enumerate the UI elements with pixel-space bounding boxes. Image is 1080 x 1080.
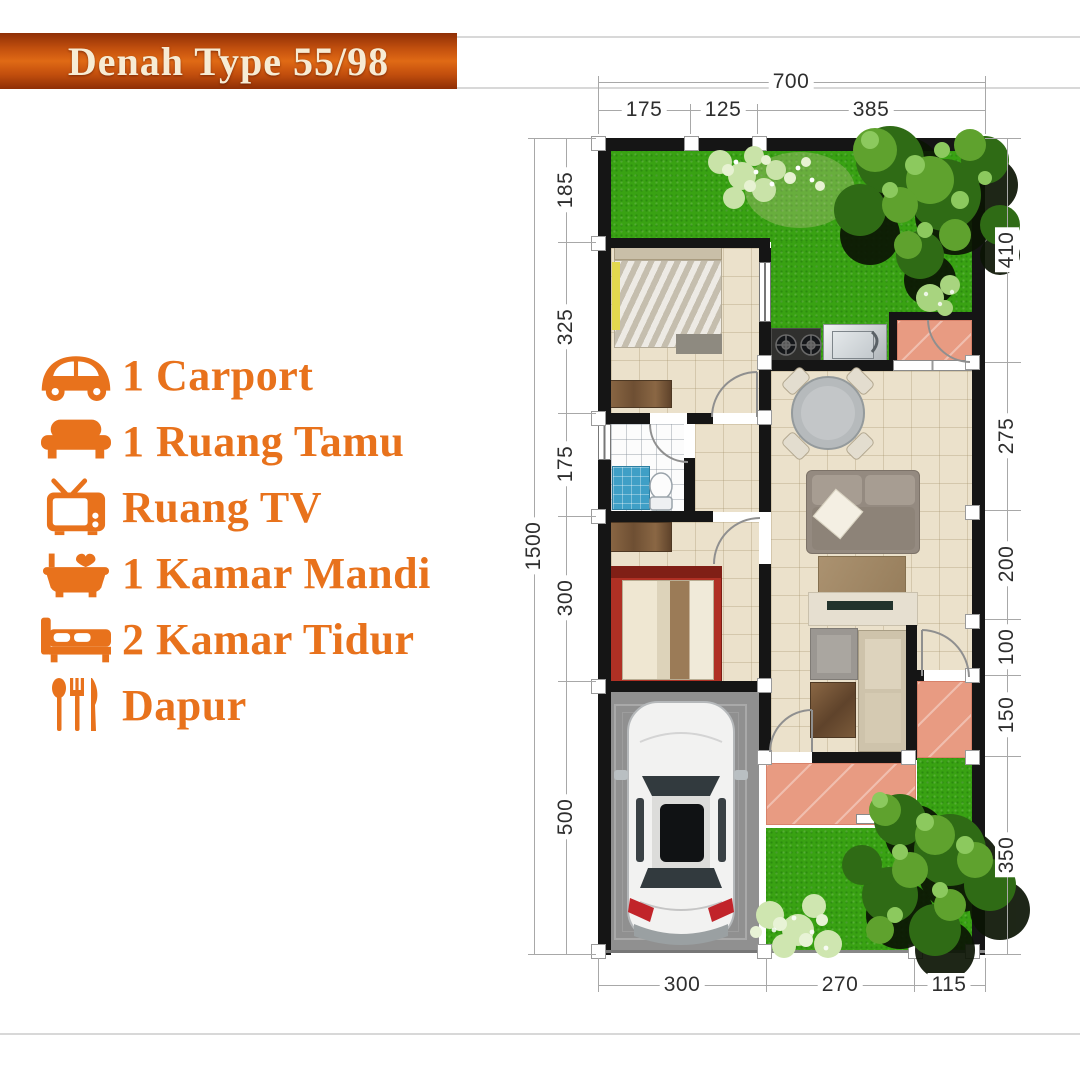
column-marker — [757, 678, 772, 693]
list-item-label: Dapur — [122, 680, 247, 731]
column-marker — [965, 614, 980, 629]
wall — [759, 371, 771, 512]
list-item-label: 1 Kamar Mandi — [122, 548, 431, 599]
column-marker — [757, 750, 772, 765]
column-marker — [965, 505, 980, 520]
dim-label: 1500 — [522, 518, 546, 575]
column-marker — [757, 355, 772, 370]
dim-label: 500 — [554, 795, 578, 840]
bottom-rule-line — [0, 1033, 1080, 1035]
dim-tick — [985, 675, 1021, 676]
dim-label: 300 — [660, 973, 705, 997]
bed-icon — [30, 615, 122, 663]
dim-tick — [985, 76, 986, 134]
dim-label: 185 — [554, 168, 578, 213]
wall — [598, 238, 770, 248]
dim-tick — [558, 681, 596, 682]
dim-tick — [757, 104, 758, 134]
title-banner: Denah Type 55/98 — [0, 33, 457, 89]
terrace-step — [856, 814, 914, 824]
bed-1-bench — [676, 334, 722, 354]
column-marker — [965, 750, 980, 765]
column-marker — [591, 236, 606, 251]
carport-paving-inner — [622, 712, 739, 932]
list-item-kamar-mandi: 1 Kamar Mandi — [30, 540, 530, 606]
television — [827, 601, 893, 610]
wall — [598, 138, 986, 151]
wall — [598, 950, 766, 953]
tv-icon — [30, 478, 122, 536]
list-item-ruang-tv: Ruang TV — [30, 474, 530, 540]
page-title: Denah Type 55/98 — [68, 38, 389, 85]
l-sofa-cushion — [865, 639, 901, 689]
dim-tick — [985, 138, 1021, 139]
column-marker — [752, 136, 767, 151]
list-item-dapur: Dapur — [30, 672, 530, 738]
tv-console — [808, 592, 918, 626]
dim-label: 385 — [849, 98, 894, 122]
wall — [906, 670, 924, 681]
column-marker — [965, 668, 980, 683]
hall-floor — [695, 424, 759, 512]
coffee-table — [818, 556, 906, 594]
dim-label: 700 — [769, 70, 814, 94]
dim-tick — [914, 958, 915, 992]
dim-tick — [558, 516, 596, 517]
dim-tick — [528, 138, 596, 139]
terrace-kitchen — [897, 320, 972, 362]
dim-label: 300 — [554, 576, 578, 621]
feature-list: 1 Carport 1 Ruang Tamu — [30, 342, 530, 738]
dim-tick — [766, 958, 767, 992]
wall — [889, 312, 897, 362]
list-item-label: Ruang TV — [122, 482, 322, 533]
list-item-label: 1 Ruang Tamu — [122, 416, 404, 467]
stove — [771, 328, 821, 362]
wall — [906, 625, 917, 760]
column-marker — [757, 410, 772, 425]
sliding-door-terrace — [893, 360, 972, 371]
dim-tick — [985, 756, 1021, 757]
dim-tick — [558, 413, 596, 414]
dim-tick — [985, 510, 1021, 511]
dim-label: 115 — [928, 973, 971, 997]
terrace-side — [917, 681, 972, 758]
wood-cabinet — [810, 682, 856, 738]
column-marker — [965, 944, 980, 959]
wall — [766, 950, 985, 953]
dim-label: 200 — [995, 542, 1019, 587]
wall — [759, 564, 771, 760]
wall — [889, 312, 972, 320]
dim-tick — [985, 619, 1021, 620]
shower-mat — [612, 466, 650, 510]
wall — [687, 413, 713, 424]
poster-canvas: Denah Type 55/98 1 Carport — [0, 0, 1080, 1080]
utensils-icon — [30, 677, 122, 733]
dresser-2 — [608, 522, 672, 552]
armchair — [810, 628, 858, 680]
dim-tick — [558, 242, 596, 243]
dim-label: 270 — [818, 973, 863, 997]
wall — [598, 511, 713, 522]
window-bedroom-1 — [759, 262, 771, 322]
column-marker — [908, 944, 923, 959]
car-icon — [30, 348, 122, 402]
dim-tick — [528, 954, 596, 955]
dim-label: 325 — [554, 305, 578, 350]
armchair-seat — [817, 635, 851, 673]
dim-tick — [598, 958, 599, 992]
bed-2-headboard — [608, 566, 722, 578]
dim-tick — [985, 954, 1021, 955]
wall — [972, 138, 985, 955]
dim-label: 350 — [995, 833, 1019, 878]
list-item-label: 1 Carport — [122, 350, 313, 401]
list-item-label: 2 Kamar Tidur — [122, 614, 415, 665]
dresser-1 — [608, 380, 672, 408]
dim-tick — [985, 958, 986, 992]
sofa-icon — [30, 419, 122, 463]
garden-bottom — [766, 828, 972, 950]
kitchen-sink — [823, 324, 887, 362]
dim-tick — [598, 76, 599, 134]
sofa-cushion — [865, 475, 915, 505]
bed-1-headboard — [614, 246, 722, 260]
list-item-kamar-tidur: 2 Kamar Tidur — [30, 606, 530, 672]
dim-tick — [690, 104, 691, 134]
dim-label: 150 — [995, 693, 1019, 738]
garden-right-strip — [917, 758, 972, 828]
bed-1-shelf — [612, 262, 620, 330]
column-marker — [757, 944, 772, 959]
column-marker — [684, 136, 699, 151]
dim-label: 275 — [995, 414, 1019, 459]
dim-label: 410 — [995, 228, 1019, 273]
sink-basin — [832, 331, 874, 359]
bed-2 — [622, 580, 714, 680]
column-marker — [965, 136, 980, 151]
dim-label: 125 — [701, 98, 746, 122]
window-bathroom — [598, 424, 611, 460]
column-marker — [965, 355, 980, 370]
list-item-carport: 1 Carport — [30, 342, 530, 408]
l-sofa — [858, 630, 908, 752]
wall — [759, 360, 893, 371]
column-marker — [901, 750, 916, 765]
dim-label: 100 — [995, 625, 1019, 670]
list-item-ruang-tamu: 1 Ruang Tamu — [30, 408, 530, 474]
garden-top — [611, 151, 972, 242]
carport-floor — [602, 692, 759, 952]
bathtub-icon — [30, 547, 122, 599]
column-marker — [591, 944, 606, 959]
dim-label: 175 — [554, 442, 578, 487]
wall — [598, 681, 770, 692]
l-sofa-cushion — [865, 693, 901, 743]
dim-tick — [985, 362, 1021, 363]
wall — [598, 138, 611, 955]
dim-label: 175 — [622, 98, 667, 122]
